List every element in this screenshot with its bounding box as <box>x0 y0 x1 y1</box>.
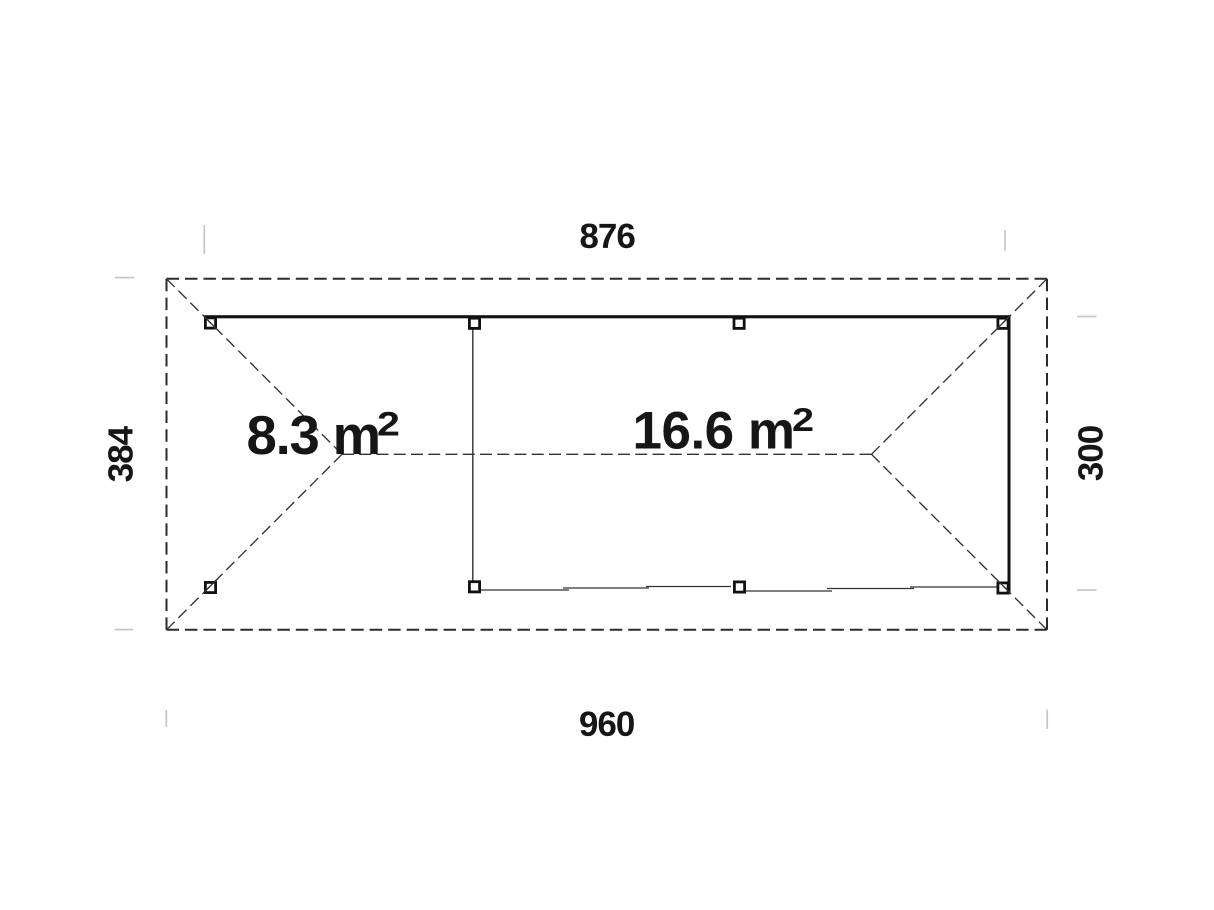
svg-text:8.3 m: 8.3 m <box>247 405 380 466</box>
svg-text:16.6 m: 16.6 m <box>633 402 795 461</box>
